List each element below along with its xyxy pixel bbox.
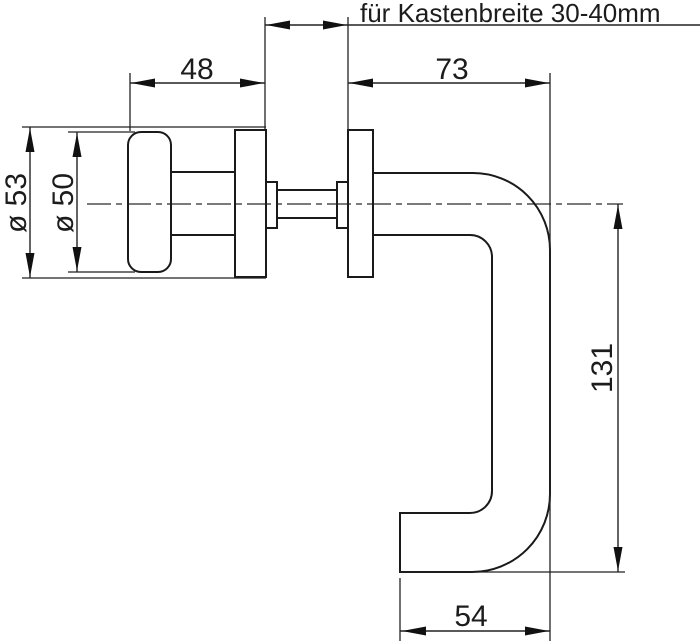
- arrowhead-up-icon: [26, 128, 35, 152]
- dim-73-label: 73: [435, 53, 468, 86]
- dim-48-label: 48: [180, 53, 213, 86]
- arrowhead-down-icon: [614, 547, 623, 571]
- arrowhead-right-icon: [525, 627, 549, 636]
- technical-drawing-page: für Kastenbreite 30-40mm 48 73 ø 53 ø 50: [0, 0, 700, 641]
- knob-outline: [128, 132, 171, 272]
- arrowhead-right-icon: [525, 79, 549, 88]
- arrowhead-left-icon: [131, 79, 155, 88]
- lever-outline: [373, 173, 550, 572]
- kastenbreite-label: für Kastenbreite 30-40mm: [360, 0, 661, 28]
- dim-131-label: 131: [586, 343, 619, 393]
- dim-54-label: 54: [454, 600, 487, 633]
- door-handle-technical-drawing: für Kastenbreite 30-40mm 48 73 ø 53 ø 50: [0, 0, 700, 641]
- arrowhead-down-icon: [26, 253, 35, 277]
- arrowhead-right-icon: [323, 21, 347, 30]
- arrowhead-left-icon: [349, 79, 373, 88]
- arrowhead-up-icon: [614, 205, 623, 229]
- spindle-left-flange: [266, 182, 277, 228]
- arrowhead-up-icon: [73, 133, 82, 157]
- arrowhead-right-icon: [240, 79, 264, 88]
- spindle-right-flange: [337, 182, 348, 228]
- arrowhead-down-icon: [73, 247, 82, 271]
- arrowhead-left-icon: [266, 21, 290, 30]
- arrowhead-left-icon: [402, 627, 426, 636]
- dim-50-label: ø 50: [47, 173, 80, 233]
- dim-53-label: ø 53: [0, 173, 33, 233]
